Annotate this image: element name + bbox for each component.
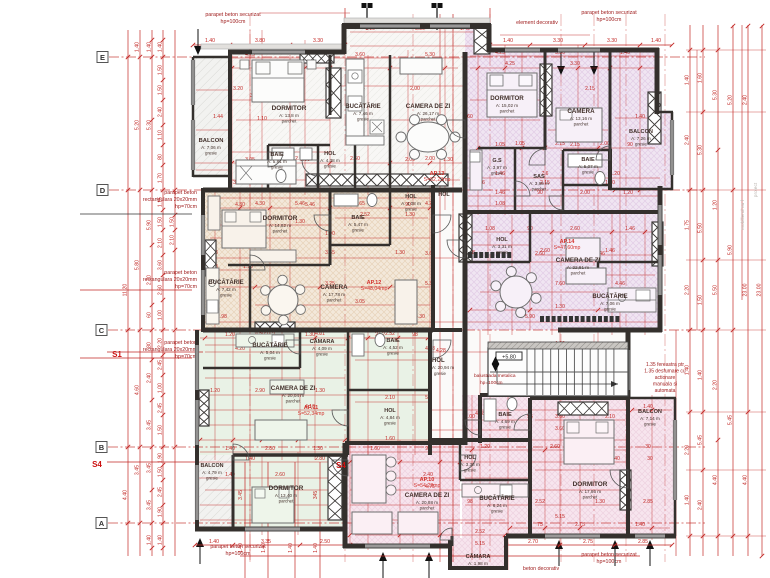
svg-text:2.20: 2.20 (685, 285, 691, 295)
svg-text:A: 13,8 m: A: 13,8 m (279, 113, 299, 118)
svg-text:2.80: 2.80 (265, 446, 275, 452)
svg-text:2.85: 2.85 (638, 539, 648, 545)
svg-text:gresie: gresie (324, 164, 337, 169)
svg-text:BUCĂTĂRIE: BUCĂTĂRIE (479, 495, 514, 502)
svg-text:CAMERA DE ZI: CAMERA DE ZI (271, 385, 316, 392)
svg-text:S1: S1 (112, 350, 122, 359)
svg-text:E: E (100, 53, 105, 62)
svg-text:1.35 desfumare cu: 1.35 desfumare cu (644, 369, 686, 375)
svg-text:2.60: 2.60 (570, 226, 580, 232)
svg-text:gresie: gresie (464, 468, 477, 473)
svg-text:A: 14,82 m: A: 14,82 m (269, 223, 291, 228)
svg-text:HOL: HOL (438, 192, 450, 198)
svg-text:5.30: 5.30 (425, 52, 435, 58)
svg-text:5.15: 5.15 (555, 514, 565, 520)
svg-text:1.30: 1.30 (305, 332, 315, 338)
svg-text:balustrada metalica: balustrada metalica (474, 373, 516, 379)
svg-text:S=48,04mp: S=48,04mp (361, 286, 388, 292)
svg-text:hp=100cm: hp=100cm (597, 559, 622, 565)
svg-text:BAIE: BAIE (581, 157, 595, 163)
svg-text:A: 7,06 m: A: 7,06 m (201, 145, 221, 150)
svg-text:1.30: 1.30 (315, 388, 325, 394)
svg-text:DORMITOR: DORMITOR (272, 105, 307, 112)
svg-text:DORMITOR: DORMITOR (263, 215, 298, 222)
svg-text:345: 345 (313, 491, 319, 500)
svg-text:2.45: 2.45 (158, 487, 164, 497)
svg-text:30: 30 (647, 456, 653, 462)
svg-text:2.40: 2.40 (685, 135, 691, 145)
svg-text:mobilierul nu f: mobilierul nu f (740, 199, 746, 230)
svg-text:1.44: 1.44 (213, 114, 223, 120)
svg-text:3.60: 3.60 (355, 52, 365, 58)
svg-text:A: 1,98 m: A: 1,98 m (468, 561, 488, 566)
svg-text:parchet: parchet (583, 495, 598, 500)
svg-text:A: 4,84 m: A: 4,84 m (380, 415, 400, 420)
svg-text:1.35 fereastra ptr: 1.35 fereastra ptr (646, 362, 684, 368)
svg-text:5.46: 5.46 (295, 201, 305, 207)
svg-text:A: 15,02 m: A: 15,02 m (496, 103, 518, 108)
svg-text:parapet beton: parapet beton (164, 340, 197, 346)
svg-text:30: 30 (645, 444, 651, 450)
svg-text:A: 17,86 m: A: 17,86 m (579, 489, 601, 494)
svg-text:1.40: 1.40 (158, 535, 164, 545)
svg-text:B: B (99, 443, 105, 452)
svg-text:2.75: 2.75 (583, 539, 593, 545)
svg-text:1.90: 1.90 (158, 507, 164, 517)
svg-text:1.40: 1.40 (698, 370, 704, 380)
svg-text:hp=100cm: hp=100cm (480, 380, 503, 386)
svg-text:HOL: HOL (405, 194, 417, 200)
svg-text:A: 5,04 m: A: 5,04 m (260, 350, 280, 355)
svg-text:4.30: 4.30 (235, 202, 245, 208)
svg-text:parapet beton securizat: parapet beton securizat (581, 10, 637, 16)
svg-text:parchet: parchet (574, 122, 589, 127)
svg-text:2.40: 2.40 (698, 500, 704, 510)
svg-text:S=54,22mp: S=54,22mp (414, 483, 441, 489)
svg-text:1.10: 1.10 (158, 130, 164, 140)
svg-text:5.20: 5.20 (728, 95, 734, 105)
svg-text:2.45: 2.45 (158, 360, 164, 370)
svg-text:2.50: 2.50 (320, 539, 330, 545)
svg-text:gresie: gresie (316, 352, 329, 357)
svg-text:1.20: 1.20 (225, 332, 235, 338)
svg-text:parchet: parchet (420, 506, 435, 511)
svg-text:1.60: 1.60 (370, 446, 380, 452)
svg-text:S4: S4 (92, 460, 102, 469)
svg-text:4.60: 4.60 (135, 385, 141, 395)
svg-text:CAMERA DE ZI: CAMERA DE ZI (406, 103, 451, 110)
svg-text:23.00: 23.00 (743, 283, 749, 296)
svg-text:1.50: 1.50 (698, 295, 704, 305)
svg-text:5.90: 5.90 (147, 220, 153, 230)
svg-text:parapet beton: parapet beton (164, 270, 197, 276)
svg-text:1.40: 1.40 (635, 114, 645, 120)
svg-text:4.25: 4.25 (505, 61, 515, 67)
svg-text:hp=70cm: hp=70cm (175, 354, 198, 360)
svg-text:S4: S4 (336, 461, 346, 470)
svg-text:1.40: 1.40 (685, 75, 691, 85)
svg-text:23.00: 23.00 (757, 283, 763, 296)
svg-text:hp=70cm: hp=70cm (175, 204, 198, 210)
svg-text:3.20: 3.20 (233, 86, 243, 92)
svg-text:gresie: gresie (496, 250, 509, 255)
svg-text:3.45: 3.45 (238, 490, 244, 500)
svg-text:A: 3,86 m: A: 3,86 m (529, 181, 549, 186)
svg-text:A: 4,79 m: A: 4,79 m (202, 470, 222, 475)
svg-text:1.40: 1.40 (313, 543, 319, 553)
svg-text:3.80: 3.80 (255, 38, 265, 44)
svg-text:1.50: 1.50 (158, 217, 164, 227)
svg-text:1.30: 1.30 (395, 250, 405, 256)
svg-text:A: 3,31 m: A: 3,31 m (492, 244, 512, 249)
svg-text:2.20: 2.20 (685, 445, 691, 455)
svg-text:BAIE: BAIE (498, 412, 512, 418)
svg-text:gresie: gresie (491, 509, 504, 514)
svg-text:1.40: 1.40 (651, 38, 661, 44)
svg-text:3.05: 3.05 (355, 299, 365, 305)
svg-text:3.30: 3.30 (570, 61, 580, 67)
svg-text:1.20: 1.20 (480, 444, 490, 450)
svg-text:2.00: 2.00 (580, 190, 590, 196)
svg-text:A: 4,09 m: A: 4,09 m (312, 346, 332, 351)
svg-text:7.60: 7.60 (555, 281, 565, 287)
svg-text:1.40: 1.40 (288, 543, 294, 553)
svg-text:G.S: G.S (492, 158, 502, 164)
svg-text:A: 4,69 m: A: 4,69 m (495, 419, 515, 424)
svg-text:SAS: SAS (533, 174, 545, 180)
svg-text:gresie: gresie (387, 351, 400, 356)
svg-text:hp=70cm: hp=70cm (175, 284, 198, 290)
svg-text:HOL: HOL (496, 237, 508, 243)
svg-text:parchet: parchet (532, 187, 547, 192)
svg-text:gresie: gresie (206, 476, 219, 481)
svg-text:parchet: parchet (500, 109, 515, 114)
svg-text:A: 3,97 m: A: 3,97 m (487, 165, 507, 170)
svg-text:CĂMARA: CĂMARA (466, 553, 491, 560)
svg-text:2.60: 2.60 (550, 444, 560, 450)
svg-text:BUCĂTĂRIE: BUCĂTĂRIE (252, 342, 287, 349)
svg-text:1.00: 1.00 (158, 383, 164, 393)
svg-text:4.40: 4.40 (713, 475, 719, 485)
svg-text:2.40: 2.40 (743, 95, 749, 105)
svg-text:60: 60 (467, 114, 473, 120)
svg-text:CAMERA DE ZI: CAMERA DE ZI (556, 257, 601, 264)
svg-text:DORMITOR: DORMITOR (269, 485, 304, 492)
svg-text:A: 3,38 m: A: 3,38 m (460, 462, 480, 467)
svg-text:1.05: 1.05 (515, 141, 525, 147)
svg-text:gresie: gresie (499, 425, 512, 430)
svg-text:3.30: 3.30 (607, 38, 617, 44)
svg-text:A: 6,24 m: A: 6,24 m (487, 503, 507, 508)
svg-text:parchet: parchet (282, 119, 297, 124)
svg-text:BALCON: BALCON (629, 129, 653, 135)
svg-text:+5.80: +5.80 (502, 355, 516, 361)
svg-text:2.00: 2.00 (410, 86, 420, 92)
svg-text:1.40: 1.40 (245, 456, 255, 462)
svg-text:BUCĂTĂRIE: BUCĂTĂRIE (345, 103, 380, 110)
svg-text:1.40: 1.40 (205, 38, 215, 44)
svg-text:BALCON: BALCON (200, 463, 223, 469)
svg-text:2.15: 2.15 (585, 86, 595, 92)
svg-text:1.30: 1.30 (313, 446, 323, 452)
svg-text:60: 60 (147, 312, 153, 318)
svg-text:S=52,34mp: S=52,34mp (298, 411, 325, 417)
svg-text:rectangulara 20x20mm: rectangulara 20x20mm (143, 277, 198, 283)
svg-text:2.52: 2.52 (475, 529, 485, 535)
svg-text:1.60: 1.60 (698, 73, 704, 83)
svg-text:5.30: 5.30 (698, 145, 704, 155)
svg-text:parapet beton: parapet beton (164, 190, 197, 196)
svg-text:1.46: 1.46 (495, 190, 505, 196)
svg-text:1.40: 1.40 (158, 42, 164, 52)
svg-text:A: 7,06 m: A: 7,06 m (600, 301, 620, 306)
svg-text:BALCON: BALCON (638, 409, 662, 415)
svg-text:1.50: 1.50 (158, 65, 164, 75)
svg-text:1.40: 1.40 (147, 42, 153, 52)
svg-text:5.30: 5.30 (713, 90, 719, 100)
svg-text:D: D (100, 186, 106, 195)
svg-text:1.08: 1.08 (495, 201, 505, 207)
svg-text:1.50: 1.50 (158, 467, 164, 477)
svg-text:gresie: gresie (604, 307, 617, 312)
svg-text:5.45: 5.45 (728, 415, 734, 425)
svg-text:A: 20,94 m: A: 20,94 m (432, 365, 454, 370)
svg-text:1.75: 1.75 (685, 220, 691, 230)
svg-text:3.45: 3.45 (147, 500, 153, 510)
svg-text:gresie: gresie (264, 356, 277, 361)
svg-text:3.60: 3.60 (158, 260, 164, 270)
svg-text:A: 5,07 m: A: 5,07 m (578, 164, 598, 169)
svg-text:BUCĂTĂRIE: BUCĂTĂRIE (208, 279, 243, 286)
svg-text:BAIE: BAIE (270, 152, 284, 158)
svg-text:automata: automata (655, 388, 676, 394)
svg-text:1.30: 1.30 (555, 304, 565, 310)
svg-text:A: 20,88 m: A: 20,88 m (416, 500, 438, 505)
svg-text:90: 90 (627, 142, 633, 148)
svg-text:parchet: parchet (273, 229, 288, 234)
svg-text:3.45: 3.45 (135, 465, 141, 475)
svg-text:1.20: 1.20 (623, 190, 633, 196)
svg-text:4.40: 4.40 (743, 475, 749, 485)
svg-text:A: 13,16 m: A: 13,16 m (570, 116, 592, 121)
svg-text:A: 7,14 m: A: 7,14 m (640, 416, 660, 421)
svg-text:1.30: 1.30 (595, 499, 605, 505)
svg-text:2.40: 2.40 (147, 373, 153, 383)
svg-text:1.50: 1.50 (170, 217, 176, 227)
svg-text:3.35: 3.35 (261, 539, 271, 545)
svg-text:CĂMARA: CĂMARA (310, 338, 335, 345)
svg-text:gresie: gresie (405, 207, 418, 212)
svg-text:5.90: 5.90 (525, 314, 535, 320)
svg-text:S=52,23mp: S=52,23mp (424, 177, 451, 183)
svg-text:3.30: 3.30 (553, 38, 563, 44)
svg-text:gresie: gresie (271, 165, 284, 170)
svg-text:75: 75 (537, 522, 543, 528)
svg-text:A: 22,81 m: A: 22,81 m (567, 265, 589, 270)
svg-text:A: 4,52 m: A: 4,52 m (383, 345, 403, 350)
svg-text:DORMITOR: DORMITOR (490, 95, 524, 102)
svg-text:gresie: gresie (644, 422, 657, 427)
svg-text:80: 80 (158, 154, 164, 160)
svg-text:A: 26,17 m: A: 26,17 m (417, 111, 439, 116)
svg-text:4.40: 4.40 (123, 490, 129, 500)
svg-text:DORMITOR: DORMITOR (573, 481, 608, 488)
svg-text:hp=100cm: hp=100cm (221, 19, 246, 25)
svg-text:gresie: gresie (220, 293, 233, 298)
svg-text:5.46: 5.46 (305, 202, 315, 208)
svg-text:5.90: 5.90 (728, 245, 734, 255)
svg-text:5.20: 5.20 (135, 120, 141, 130)
svg-text:parchet: parchet (571, 271, 586, 276)
svg-text:parchet: parchet (286, 399, 301, 404)
svg-text:2.10: 2.10 (158, 238, 164, 248)
svg-text:BAIE: BAIE (386, 338, 400, 344)
svg-text:BALCON: BALCON (199, 138, 224, 144)
svg-text:A: 17,78 m: A: 17,78 m (323, 292, 345, 297)
svg-text:2.60: 2.60 (275, 472, 285, 478)
svg-text:parchet: parchet (279, 499, 294, 504)
svg-text:CAMERA: CAMERA (567, 108, 595, 115)
svg-text:4.46: 4.46 (615, 281, 625, 287)
svg-text:1.00: 1.00 (158, 310, 164, 320)
svg-text:2.80: 2.80 (315, 456, 325, 462)
svg-text:5.15: 5.15 (475, 541, 485, 547)
svg-text:gresie: gresie (384, 421, 397, 426)
svg-text:1.40: 1.40 (685, 495, 691, 505)
svg-text:parchet: parchet (327, 298, 342, 303)
svg-text:A: A (99, 519, 105, 528)
svg-text:98: 98 (412, 332, 418, 338)
svg-text:4.28: 4.28 (436, 348, 446, 354)
svg-text:1.20: 1.20 (713, 200, 719, 210)
svg-text:gresie: gresie (491, 171, 504, 176)
svg-text:A: 5,81 m: A: 5,81 m (267, 159, 287, 164)
svg-text:2.10: 2.10 (170, 235, 176, 245)
svg-text:HOL: HOL (464, 455, 476, 461)
svg-text:HOL: HOL (384, 408, 396, 414)
svg-text:gresie: gresie (357, 117, 370, 122)
svg-text:2.10: 2.10 (385, 395, 395, 401)
svg-text:CAMERA DE ZI: CAMERA DE ZI (405, 492, 450, 499)
svg-text:2.00: 2.00 (425, 156, 435, 162)
svg-text:gresie: gresie (635, 142, 648, 147)
svg-text:3.45: 3.45 (147, 420, 153, 430)
svg-text:S=47,60mp: S=47,60mp (554, 245, 581, 251)
svg-text:hp=100cm: hp=100cm (597, 17, 622, 23)
svg-text:5.50: 5.50 (698, 223, 704, 233)
svg-text:element decorativ: element decorativ (516, 20, 558, 26)
svg-text:parapet beton securizat: parapet beton securizat (581, 552, 637, 558)
svg-text:C: C (99, 326, 105, 335)
svg-text:5.80: 5.80 (135, 260, 141, 270)
svg-text:manuala si: manuala si (653, 382, 677, 388)
svg-text:98: 98 (467, 499, 473, 505)
svg-text:1.46: 1.46 (625, 226, 635, 232)
svg-text:1.10: 1.10 (257, 116, 267, 122)
svg-text:5.50: 5.50 (713, 285, 719, 295)
svg-text:5.30: 5.30 (147, 120, 153, 130)
svg-text:1.30: 1.30 (405, 212, 415, 218)
svg-text:2.20: 2.20 (713, 380, 719, 390)
svg-text:1.40: 1.40 (147, 535, 153, 545)
svg-text:A: 7,26 m: A: 7,26 m (631, 136, 651, 141)
svg-text:2.45: 2.45 (158, 403, 164, 413)
svg-text:HOL: HOL (432, 358, 445, 364)
svg-text:A: 7,46 m: A: 7,46 m (353, 111, 373, 116)
svg-text:A: 7,42 m: A: 7,42 m (216, 287, 236, 292)
svg-text:2.70: 2.70 (528, 539, 538, 545)
svg-text:BUCĂTĂRIE: BUCĂTĂRIE (592, 293, 627, 300)
svg-text:3.30: 3.30 (313, 38, 323, 44)
svg-text:A: 5,47 m: A: 5,47 m (348, 222, 368, 227)
svg-text:2.60: 2.60 (540, 248, 550, 254)
svg-text:2.75: 2.75 (575, 522, 585, 528)
svg-text:BAIE: BAIE (351, 215, 365, 221)
svg-text:1.40: 1.40 (225, 446, 235, 452)
svg-text:rectangulara 20x20mm: rectangulara 20x20mm (143, 197, 198, 203)
svg-text:1.40: 1.40 (503, 38, 513, 44)
svg-text:A: 13,40 m: A: 13,40 m (275, 493, 297, 498)
svg-text:1.46: 1.46 (605, 248, 615, 254)
svg-text:1.20: 1.20 (210, 388, 220, 394)
svg-text:5.45: 5.45 (698, 435, 704, 445)
svg-text:1.70: 1.70 (158, 173, 164, 183)
svg-text:1.08: 1.08 (485, 226, 495, 232)
svg-text:gresie: gresie (205, 151, 218, 156)
svg-text:1.40: 1.40 (635, 522, 645, 528)
svg-text:4.30: 4.30 (255, 201, 265, 207)
svg-text:A: 20,04 m: A: 20,04 m (282, 393, 304, 398)
svg-text:actionare: actionare (655, 375, 676, 381)
svg-text:HOL: HOL (324, 151, 336, 157)
svg-text:2.15: 2.15 (570, 142, 580, 148)
svg-text:2.52: 2.52 (535, 499, 545, 505)
svg-text:2.85: 2.85 (643, 499, 653, 505)
svg-text:A: 4,08 m: A: 4,08 m (401, 201, 421, 206)
svg-text:1.40: 1.40 (135, 42, 141, 52)
svg-text:1.40: 1.40 (209, 539, 219, 545)
svg-text:A: 4,38 m: A: 4,38 m (320, 158, 340, 163)
svg-text:proiect: proiect (753, 182, 759, 197)
svg-text:1.50: 1.50 (158, 425, 164, 435)
svg-text:3.45: 3.45 (147, 463, 153, 473)
svg-text:1.50: 1.50 (158, 85, 164, 95)
svg-text:parapet beton securizat: parapet beton securizat (205, 12, 261, 18)
svg-text:parchet: parchet (421, 117, 436, 122)
svg-text:2.40: 2.40 (158, 107, 164, 117)
svg-text:beton decorativ: beton decorativ (523, 566, 560, 572)
svg-text:gresie: gresie (434, 371, 447, 376)
svg-text:CAMERA: CAMERA (320, 284, 348, 291)
svg-text:gresie: gresie (582, 170, 595, 175)
svg-text:2.90: 2.90 (255, 388, 265, 394)
svg-text:1.90: 1.90 (158, 453, 164, 463)
svg-text:gresie: gresie (352, 228, 365, 233)
